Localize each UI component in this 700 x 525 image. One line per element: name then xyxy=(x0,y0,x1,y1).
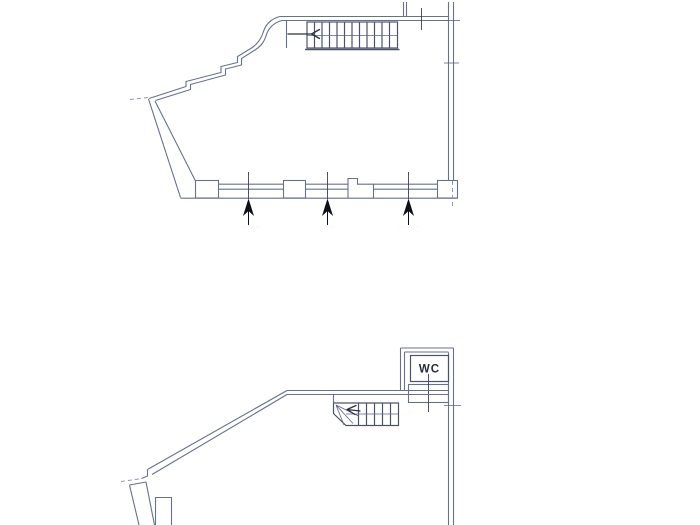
upper-facade-right-block xyxy=(438,181,458,199)
upper-right-wall xyxy=(449,2,454,181)
upper-facade-left-block xyxy=(196,181,219,199)
upper-left-boundary-outer xyxy=(149,17,280,99)
lower-left-jog xyxy=(142,470,148,479)
lower-staircase xyxy=(334,395,399,426)
upper-top-wall xyxy=(280,17,449,21)
entrance-arrow-1: · ··· ····· xyxy=(237,172,260,231)
upper-dashed-wall-stub xyxy=(130,98,148,100)
entrance-label-1: · ··· ····· xyxy=(237,225,260,231)
entrance-arrow-3: ···· ····· xyxy=(398,172,419,231)
lower-floor-plan: WC xyxy=(121,348,461,525)
lower-left-wall xyxy=(130,482,155,525)
upper-stair-treads xyxy=(315,22,390,48)
lower-interior-pier xyxy=(156,498,172,525)
upper-left-wall xyxy=(149,99,196,198)
upper-top-partition xyxy=(404,2,407,17)
entrance-label-2: ·· ···· xyxy=(320,225,335,231)
upper-facade-pier-1 xyxy=(284,181,306,199)
floor-plan-scan: · ··· ····· ·· ···· ···· ····· WC xyxy=(0,0,700,525)
upper-staircase xyxy=(287,21,400,50)
upper-facade-glazing-lines xyxy=(219,184,438,189)
entrance-arrow-2: ·· ···· xyxy=(320,172,335,231)
entrance-label-3: ···· ····· xyxy=(398,225,419,231)
lower-top-wall xyxy=(287,391,449,395)
floor-plan-drawing: · ··· ····· ·· ···· ···· ····· WC xyxy=(0,0,700,525)
lower-diagonal-wall xyxy=(148,391,288,475)
upper-facade-pier-2 xyxy=(348,179,374,199)
upper-floor-plan: · ··· ····· ·· ···· ···· ····· xyxy=(130,2,460,231)
lower-dashed-wall-stub xyxy=(121,479,140,482)
wc-label: WC xyxy=(419,364,440,376)
lower-right-wall xyxy=(449,348,454,525)
